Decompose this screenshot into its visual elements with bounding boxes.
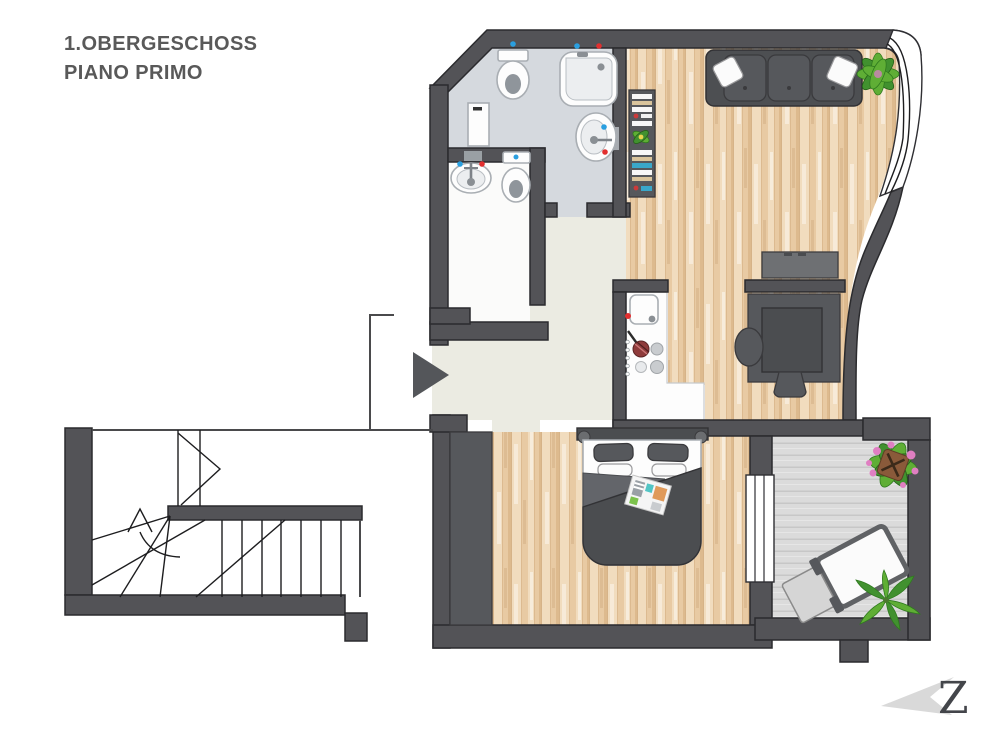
wall-stairs-bottom (65, 595, 345, 615)
floorplan-page: 1.OBERGESCHOSS PIANO PRIMO (0, 0, 1000, 750)
desk-icon (735, 294, 840, 397)
wc-doorway-floor (530, 303, 545, 322)
bathroom-doorway-floor (557, 203, 587, 217)
toilet-icon (497, 41, 529, 99)
bookshelf-icon (629, 90, 655, 197)
wall-bedroom-bottom (433, 625, 772, 648)
wall-bath-left (430, 85, 448, 345)
wardrobe-icon (450, 432, 492, 625)
company-logo: Z (881, 673, 969, 724)
bed-icon (577, 428, 708, 565)
wall-balcony-step (840, 640, 868, 662)
wall-stairs-left (65, 428, 92, 595)
wall-kitchen-top (613, 280, 668, 292)
plant-icon (857, 53, 899, 95)
bath-cabinet-icon (468, 103, 489, 146)
wall-bath-bottom-a (545, 203, 557, 217)
wall-bedroom-left (433, 415, 450, 648)
wall-wc-right (530, 148, 545, 305)
wall-stairs-landing (168, 506, 362, 520)
bathtub-icon (560, 43, 617, 106)
wall-entry-corner (430, 308, 470, 324)
floorplan-drawing: Z (0, 0, 1000, 750)
wall-balcony-bottom (755, 618, 930, 640)
wall-desk-nook (745, 280, 845, 292)
wc-toilet-icon (502, 152, 530, 202)
balcony-door-window (746, 475, 774, 582)
wall-bedroom-corner (430, 415, 467, 432)
wall-balcony-topright (863, 418, 930, 440)
sideboard-icon (762, 252, 838, 278)
kitchen-sink-icon (625, 295, 658, 324)
wall-stairs-step (345, 613, 367, 641)
logo-letter: Z (938, 673, 969, 724)
wall-kitchen-left (613, 292, 626, 436)
sofa-icon (706, 50, 862, 106)
